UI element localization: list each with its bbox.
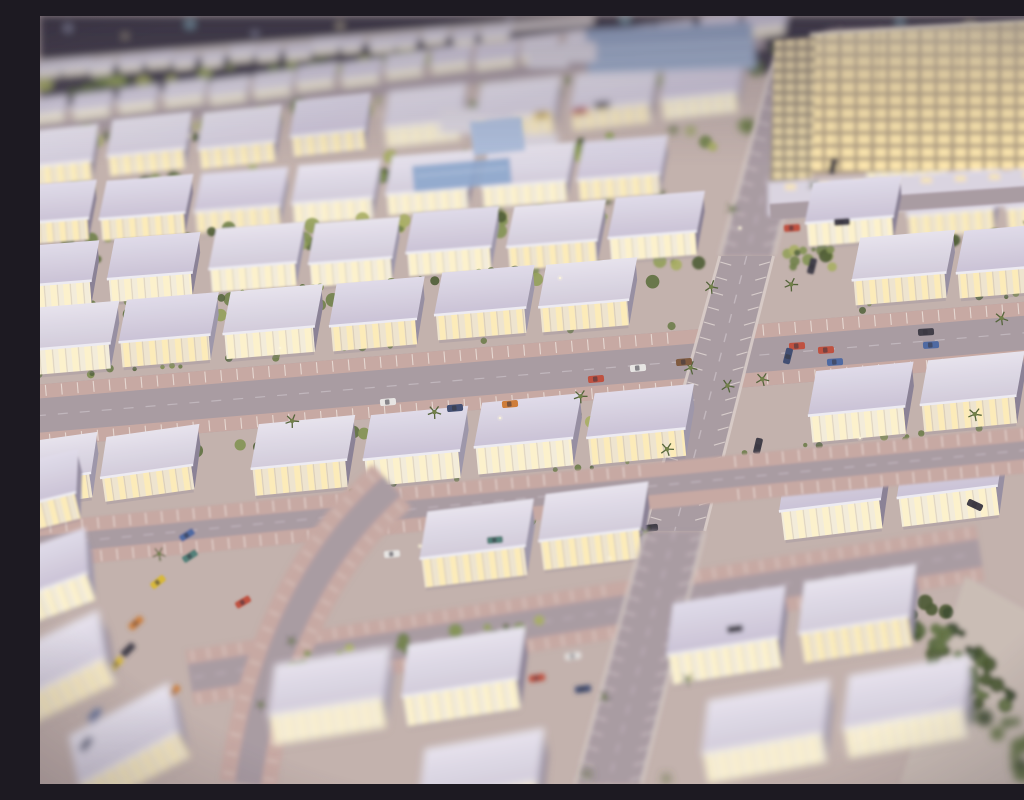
scale-model-photo (40, 16, 1024, 784)
vignette-overlay (40, 16, 1024, 784)
model-scene (40, 16, 1024, 784)
